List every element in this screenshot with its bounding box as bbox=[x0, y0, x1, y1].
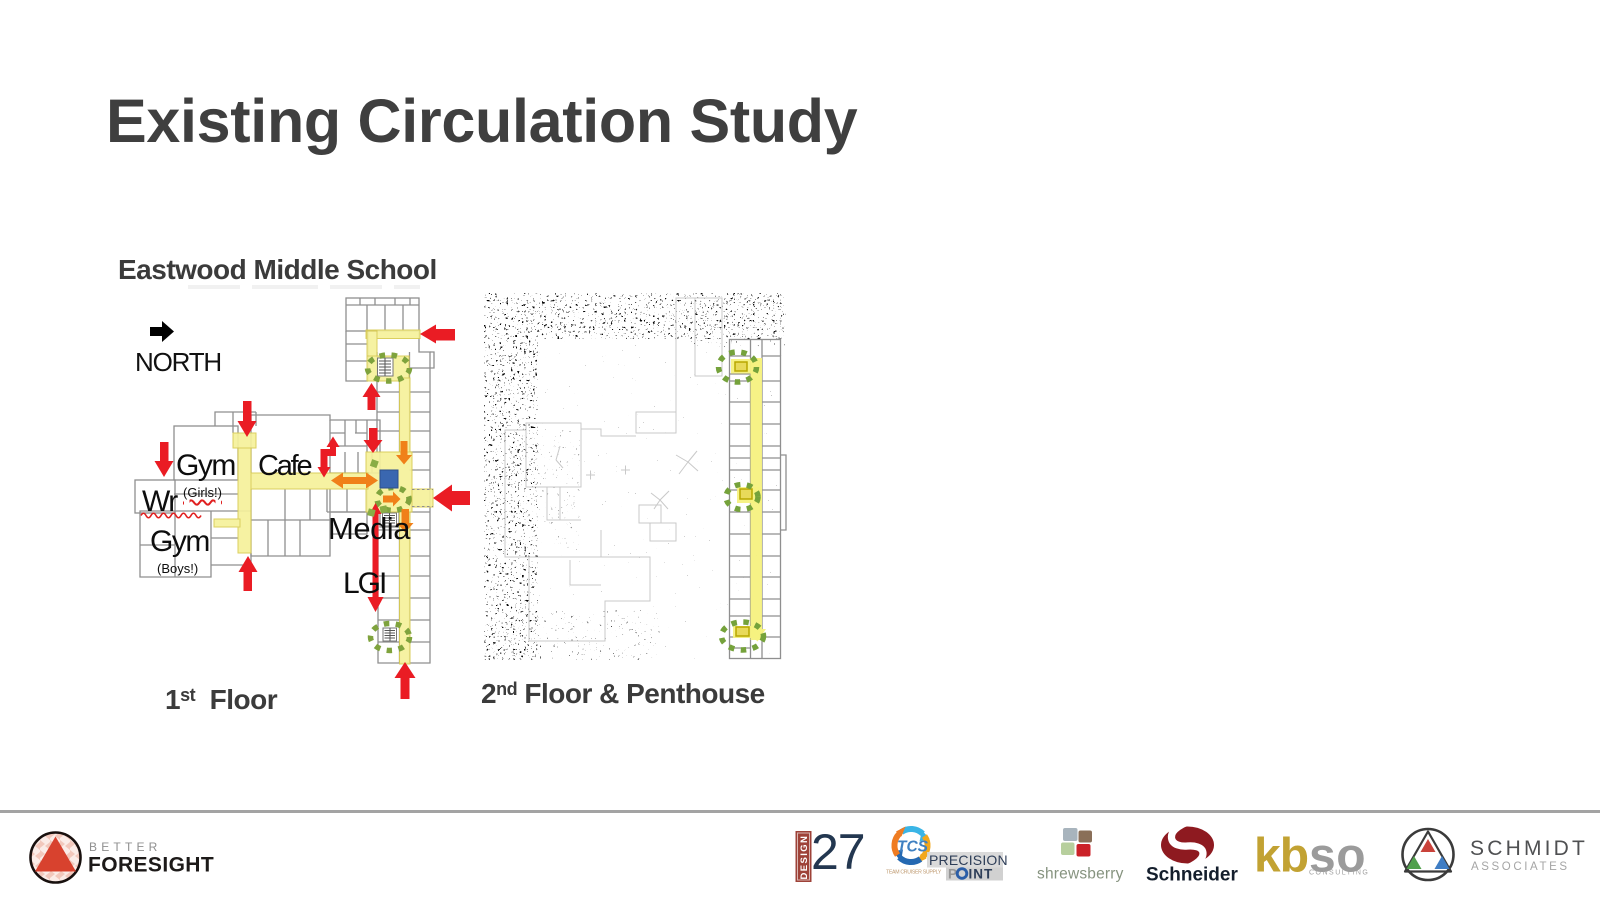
svg-text:ASSOCIATES: ASSOCIATES bbox=[1471, 861, 1570, 873]
svg-text:TEAM CRUISER SUPPLY: TEAM CRUISER SUPPLY bbox=[886, 870, 942, 876]
svg-text:27: 27 bbox=[811, 824, 865, 880]
svg-text:kb: kb bbox=[1254, 830, 1308, 883]
svg-text:SCHMIDT: SCHMIDT bbox=[1470, 837, 1588, 860]
svg-text:shrewsberry: shrewsberry bbox=[1037, 866, 1124, 883]
svg-text:INT: INT bbox=[969, 867, 994, 882]
svg-text:FORESIGHT: FORESIGHT bbox=[88, 854, 214, 877]
svg-text:DESIGN: DESIGN bbox=[799, 835, 810, 880]
svg-text:TCS: TCS bbox=[897, 839, 929, 856]
svg-text:P: P bbox=[948, 867, 957, 882]
svg-text:CONSULTING: CONSULTING bbox=[1309, 870, 1369, 877]
svg-text:BETTER: BETTER bbox=[89, 840, 162, 854]
svg-text:Schneider: Schneider bbox=[1146, 865, 1238, 886]
